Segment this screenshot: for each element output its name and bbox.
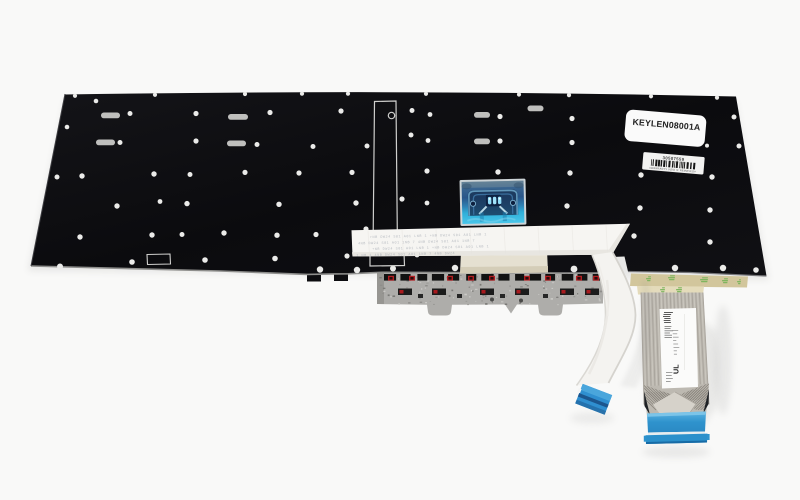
svg-text:UL: UL <box>672 364 681 374</box>
